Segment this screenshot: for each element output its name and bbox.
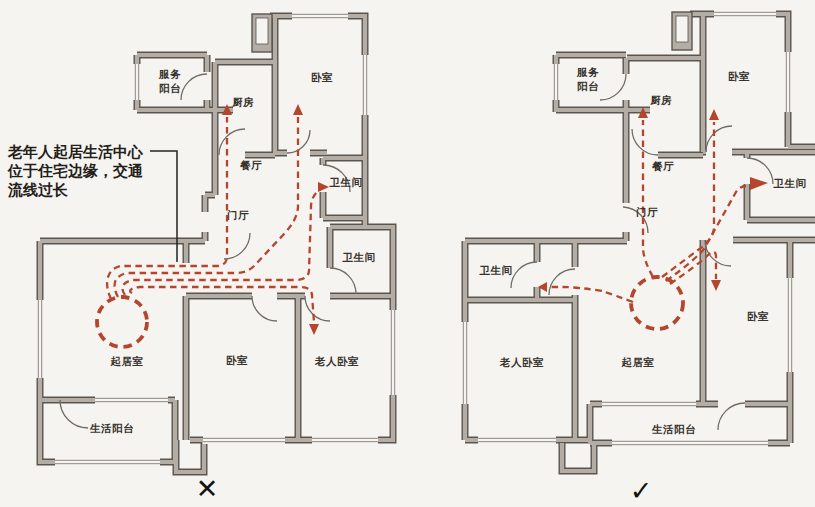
room-label-bathroom-left-right-plan: 卫生间: [479, 264, 513, 276]
annotation-text-line2: 位于住宅边缘，交通: [7, 162, 144, 179]
room-label-elder-bedroom-right: 老人卧室: [499, 356, 544, 368]
room-label-service-balcony-left-2: 阳台: [159, 82, 181, 94]
room-label-life-balcony-right: 生活阳台: [651, 423, 696, 435]
room-label-kitchen-right: 厨房: [649, 94, 672, 106]
room-label-foyer-right: 门厅: [636, 206, 658, 218]
diagram-canvas: 服务 阳台 厨房 卧室 餐厅 卫生间 门厅 卫生间 起居室 卧室 老人卧室 生活…: [0, 0, 815, 507]
room-label-elder-bedroom-left: 老人卧室: [314, 355, 359, 367]
room-label-dining-left: 餐厅: [240, 159, 262, 171]
left-plan-shaft-inner: [256, 18, 268, 44]
room-label-bathroom-right: 卫生间: [773, 177, 807, 189]
room-label-service-balcony-right-2: 阳台: [577, 80, 599, 92]
room-label-bedroom-middle-left: 卧室: [226, 354, 248, 366]
room-label-service-balcony-left-1: 服务: [158, 68, 181, 80]
check-mark-icon: ✓: [630, 475, 653, 506]
room-label-kitchen-left: 厨房: [231, 96, 254, 108]
cross-mark-icon: ✕: [196, 473, 219, 504]
room-label-bathroom-upper-left: 卫生间: [329, 176, 363, 188]
room-label-foyer-left: 门厅: [227, 209, 249, 221]
room-label-bedroom-top-right: 卧室: [728, 70, 750, 82]
room-label-service-balcony-right-1: 服务: [576, 66, 599, 78]
floor-plan-diagram: 服务 阳台 厨房 卧室 餐厅 卫生间 门厅 卫生间 起居室 卧室 老人卧室 生活…: [0, 0, 815, 507]
room-label-living-left: 起居室: [110, 355, 144, 367]
room-label-bedroom-top-left: 卧室: [311, 71, 333, 83]
annotation-text-line3: 流线过长: [7, 181, 68, 198]
right-plan-shaft-inner: [676, 16, 688, 42]
room-label-bathroom-lower-left: 卫生间: [342, 251, 376, 263]
room-label-life-balcony-left: 生活阳台: [89, 422, 134, 434]
room-label-bedroom-right: 卧室: [747, 310, 769, 322]
room-label-living-right: 起居室: [621, 356, 655, 368]
room-label-dining-right: 餐厅: [652, 160, 674, 172]
annotation-text-line1: 老年人起居生活中心: [7, 143, 144, 160]
